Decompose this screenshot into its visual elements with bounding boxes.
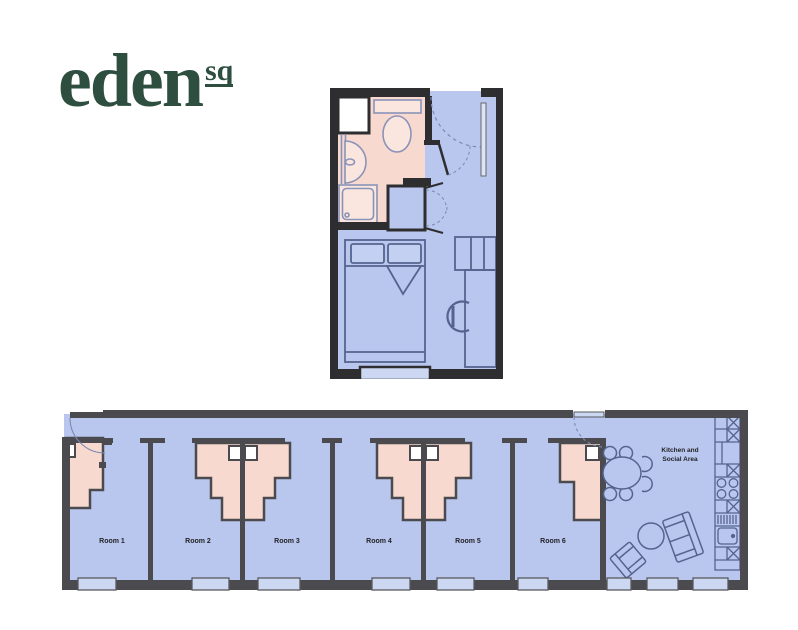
studio-side-window: [481, 103, 486, 176]
room-3-label: Room 3: [274, 538, 300, 545]
shower-icon: [339, 185, 377, 223]
room-2-label: Room 2: [185, 538, 211, 545]
kitchen-label-line1: Kitchen and: [661, 447, 698, 454]
room-6-label: Room 6: [540, 538, 566, 545]
bathroom-shaft: [338, 97, 369, 133]
logo-text: eden: [58, 50, 202, 112]
cluster-floorplan: Room 1 Room 2 Room 3 Room 4 Room 5 Room …: [58, 410, 748, 594]
room-1-label: Room 1: [99, 538, 125, 545]
room-4-label: Room 4: [366, 538, 392, 545]
logo-superscript: sq: [205, 59, 233, 87]
room-5-label: Room 5: [455, 538, 481, 545]
drainer-icon: [718, 515, 736, 524]
studio-bottom-window: [360, 367, 430, 379]
kitchen-label-line2: Social Area: [662, 456, 698, 463]
studio-floorplan: [329, 87, 503, 379]
eden-sq-logo: eden sq: [58, 50, 233, 112]
